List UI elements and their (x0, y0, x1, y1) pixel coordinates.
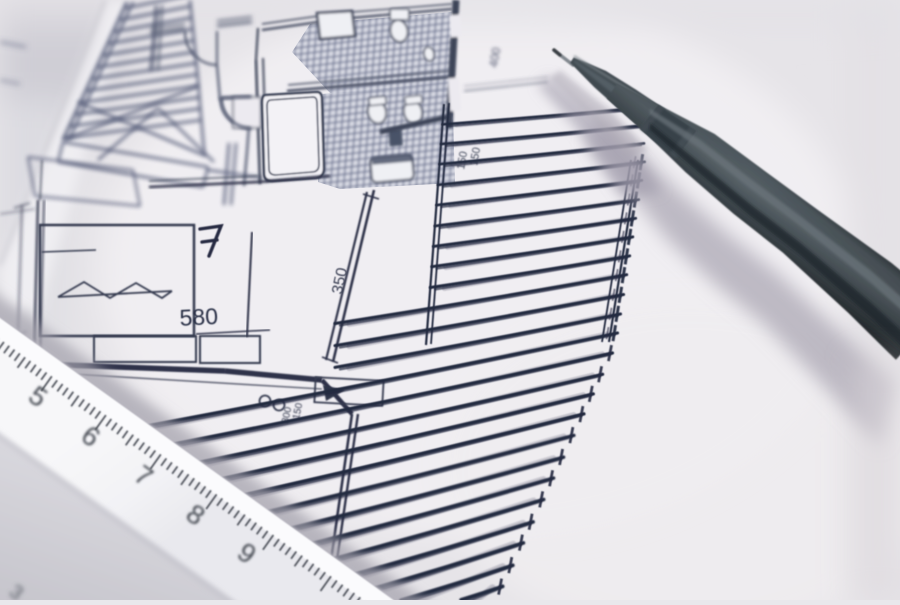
svg-text:580: 580 (179, 303, 219, 331)
